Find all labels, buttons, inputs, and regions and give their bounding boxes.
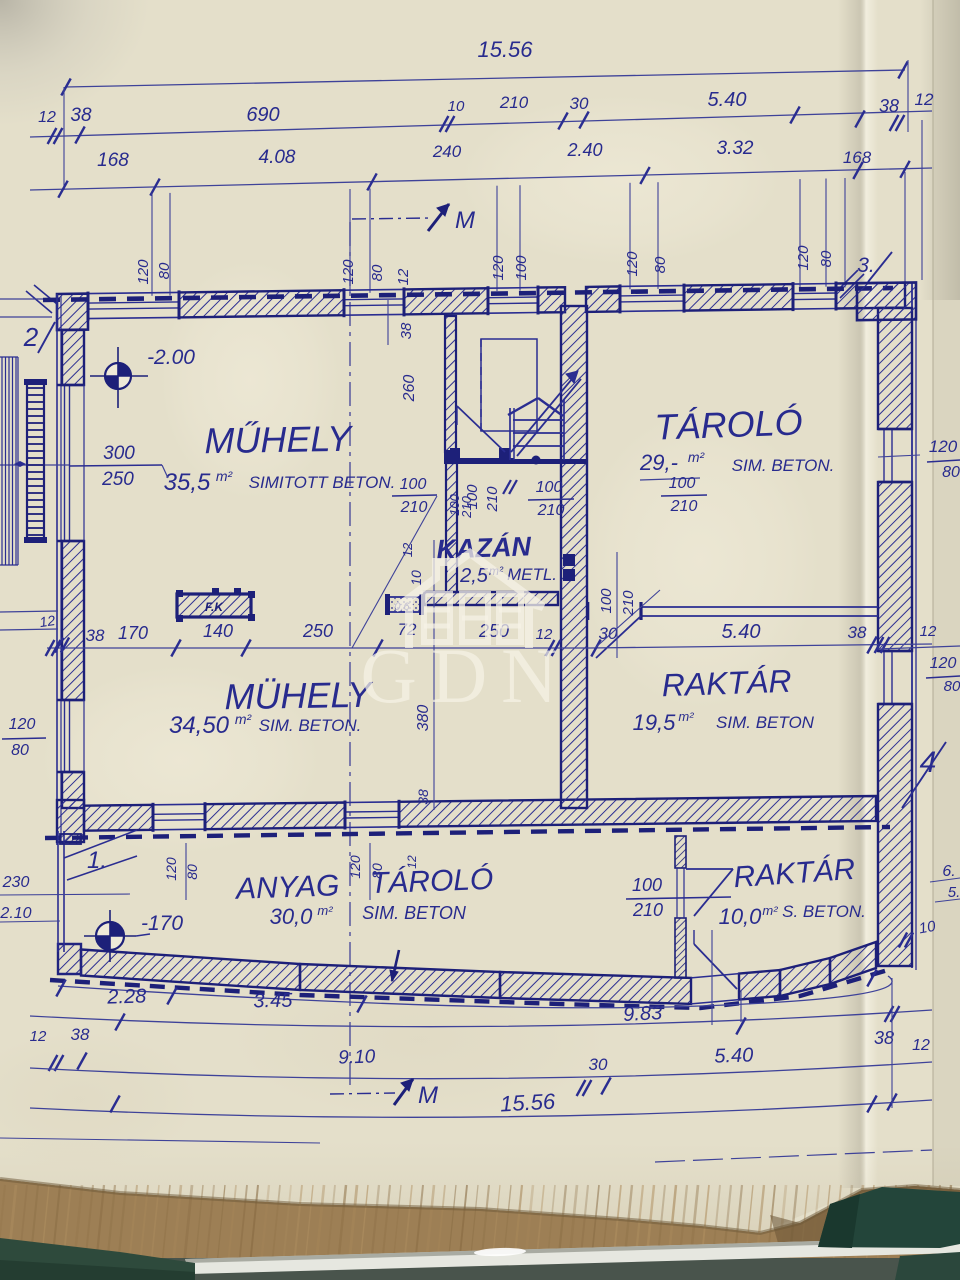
svg-text:38: 38 <box>70 105 92 126</box>
svg-text:250: 250 <box>302 621 333 641</box>
svg-text:15.56: 15.56 <box>477 37 533 62</box>
svg-text:100: 100 <box>536 479 563 496</box>
svg-text:100: 100 <box>632 875 662 895</box>
svg-text:230: 230 <box>2 874 30 891</box>
svg-text:9.10: 9.10 <box>338 1046 376 1068</box>
svg-text:m²: m² <box>216 468 234 484</box>
svg-text:9.83: 9.83 <box>623 1002 663 1026</box>
svg-text:12: 12 <box>405 855 419 869</box>
svg-text:12: 12 <box>30 1028 47 1045</box>
svg-text:30: 30 <box>599 624 618 643</box>
svg-text:210: 210 <box>670 498 698 515</box>
svg-text:100: 100 <box>400 476 427 493</box>
svg-text:80: 80 <box>11 742 29 759</box>
svg-text:38: 38 <box>874 1028 894 1048</box>
svg-text:100: 100 <box>669 475 696 492</box>
svg-text:3.45: 3.45 <box>253 990 293 1013</box>
svg-text:4.08: 4.08 <box>259 147 296 168</box>
svg-text:260: 260 <box>401 375 418 403</box>
svg-text:38: 38 <box>415 789 431 805</box>
svg-text:10: 10 <box>408 570 424 586</box>
svg-text:80: 80 <box>369 863 385 879</box>
svg-text:250: 250 <box>101 469 134 490</box>
svg-text:TÁROLÓ: TÁROLÓ <box>369 863 493 900</box>
svg-text:210: 210 <box>632 900 663 920</box>
svg-text:100: 100 <box>598 588 615 614</box>
svg-text:120: 120 <box>624 251 641 277</box>
svg-text:m²: m² <box>235 711 253 727</box>
svg-text:-170: -170 <box>141 912 183 935</box>
svg-text:38: 38 <box>86 626 105 645</box>
svg-text:210: 210 <box>620 590 637 617</box>
svg-text:m²: m² <box>317 903 333 918</box>
svg-text:38: 38 <box>71 1025 90 1044</box>
svg-text:2: 2 <box>23 322 39 352</box>
svg-text:5.40: 5.40 <box>722 621 761 643</box>
svg-text:m²: m² <box>678 709 694 724</box>
svg-text:m²: m² <box>762 903 778 918</box>
svg-text:m²: m² <box>688 449 706 465</box>
svg-text:5.40: 5.40 <box>714 1044 754 1067</box>
svg-text:120: 120 <box>340 259 357 285</box>
svg-text:140: 140 <box>203 621 233 641</box>
svg-text:M: M <box>418 1082 438 1109</box>
svg-text:S. BETON.: S. BETON. <box>782 902 866 921</box>
svg-text:168: 168 <box>843 148 872 167</box>
svg-text:29,-: 29,- <box>639 450 678 475</box>
svg-text:5.40: 5.40 <box>708 89 747 111</box>
svg-text:SIM. BETON.: SIM. BETON. <box>732 456 835 475</box>
svg-text:210: 210 <box>537 502 565 519</box>
svg-text:120: 120 <box>347 855 363 879</box>
svg-text:120: 120 <box>490 255 507 281</box>
svg-text:168: 168 <box>97 150 129 171</box>
svg-text:30: 30 <box>570 94 589 113</box>
svg-text:SIM. BETON: SIM. BETON <box>716 713 815 732</box>
svg-text:80: 80 <box>156 262 173 279</box>
svg-text:ANYAG: ANYAG <box>233 869 339 906</box>
svg-text:120: 120 <box>929 437 958 456</box>
svg-text:10,0: 10,0 <box>719 904 763 929</box>
svg-text:80: 80 <box>942 464 960 481</box>
svg-text:SIM. BETON: SIM. BETON <box>362 903 467 923</box>
svg-text:120: 120 <box>163 857 179 881</box>
svg-text:120: 120 <box>135 259 152 285</box>
svg-text:30: 30 <box>589 1055 608 1074</box>
svg-text:5.: 5. <box>948 884 960 901</box>
svg-text:4: 4 <box>920 746 937 779</box>
svg-text:-2.00: -2.00 <box>147 346 195 369</box>
svg-text:38: 38 <box>398 322 415 339</box>
svg-text:12: 12 <box>915 90 934 109</box>
svg-text:210: 210 <box>459 495 474 518</box>
svg-text:15.56: 15.56 <box>499 1089 556 1117</box>
svg-text:2.28: 2.28 <box>106 985 147 1008</box>
svg-text:80: 80 <box>944 678 960 695</box>
svg-text:690: 690 <box>246 104 279 126</box>
svg-text:M: M <box>455 207 475 234</box>
svg-text:6.: 6. <box>942 863 955 880</box>
svg-text:35,5: 35,5 <box>164 469 211 496</box>
svg-text:12: 12 <box>395 268 412 285</box>
svg-text:10: 10 <box>448 98 465 115</box>
svg-text:300: 300 <box>103 443 135 464</box>
svg-text:12: 12 <box>920 623 937 640</box>
svg-text:240: 240 <box>432 142 462 161</box>
svg-text:210: 210 <box>484 486 501 513</box>
svg-text:210: 210 <box>400 499 428 516</box>
svg-text:120: 120 <box>795 245 812 271</box>
svg-text:80: 80 <box>818 250 835 267</box>
svg-text:100: 100 <box>513 255 530 281</box>
svg-text:80: 80 <box>652 256 669 273</box>
svg-text:30,0: 30,0 <box>270 904 314 929</box>
svg-text:MŰHELY: MŰHELY <box>204 418 354 462</box>
svg-text:34,50: 34,50 <box>169 712 230 739</box>
svg-text:12: 12 <box>38 612 56 630</box>
svg-text:SIM. BETON.: SIM. BETON. <box>259 716 362 735</box>
svg-text:TÁROLÓ: TÁROLÓ <box>654 401 803 447</box>
svg-text:3.32: 3.32 <box>717 138 754 159</box>
svg-text:F.K: F.K <box>205 600 224 614</box>
svg-text:19,5: 19,5 <box>633 710 677 735</box>
svg-text:210: 210 <box>499 93 529 112</box>
svg-text:120: 120 <box>930 655 957 672</box>
svg-text:12: 12 <box>912 1037 930 1054</box>
svg-text:120: 120 <box>9 716 36 733</box>
svg-text:2.40: 2.40 <box>566 140 602 160</box>
svg-text:12: 12 <box>38 109 56 126</box>
svg-text:38: 38 <box>848 623 867 642</box>
svg-text:80: 80 <box>369 264 386 281</box>
svg-text:2.10: 2.10 <box>0 905 32 922</box>
svg-text:SIMITOTT BETON.: SIMITOTT BETON. <box>249 473 396 492</box>
svg-text:3.: 3. <box>857 254 875 277</box>
svg-text:GDN: GDN <box>361 632 572 719</box>
svg-text:170: 170 <box>118 623 148 643</box>
svg-text:RAKTÁR: RAKTÁR <box>661 663 792 704</box>
svg-text:12: 12 <box>400 542 415 557</box>
